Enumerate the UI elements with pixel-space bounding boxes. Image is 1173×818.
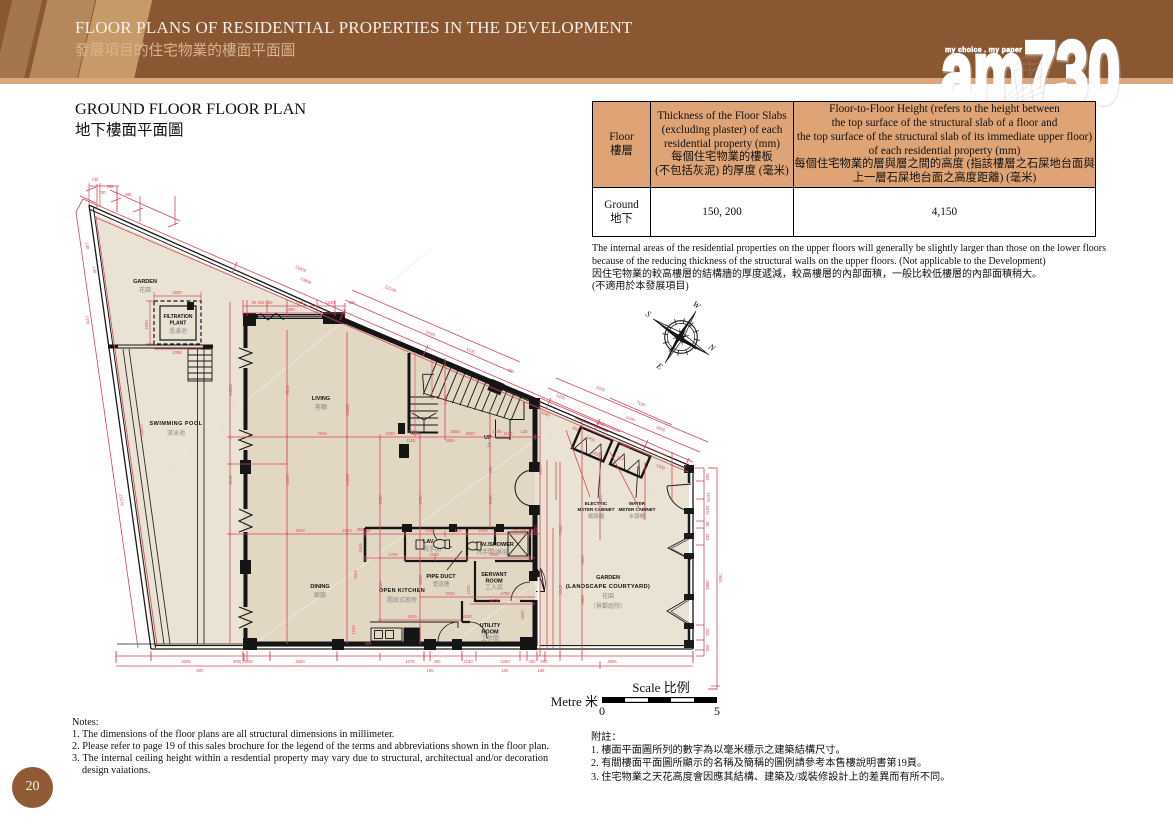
- svg-text:650: 650: [705, 645, 710, 653]
- svg-text:3650: 3650: [465, 431, 475, 436]
- svg-text:1500: 1500: [144, 320, 149, 330]
- svg-text:2340: 2340: [558, 525, 563, 535]
- svg-text:1750: 1750: [500, 591, 510, 596]
- svg-text:14085: 14085: [345, 474, 350, 486]
- svg-text:400: 400: [529, 659, 537, 664]
- svg-text:4490: 4490: [443, 395, 448, 405]
- svg-text:PIPE DUCT: PIPE DUCT: [426, 574, 456, 580]
- svg-text:DINING: DINING: [310, 584, 329, 590]
- svg-text:2280: 2280: [500, 659, 510, 664]
- svg-text:195: 195: [538, 668, 546, 673]
- svg-text:水錶櫃: 水錶櫃: [629, 512, 646, 520]
- svg-text:METER CABINET: METER CABINET: [619, 507, 656, 512]
- svg-text:1006: 1006: [172, 350, 182, 355]
- svg-text:PLANT: PLANT: [170, 321, 187, 327]
- svg-text:8210: 8210: [228, 475, 233, 485]
- svg-text:S: S: [644, 309, 654, 320]
- svg-text:FILTRATION: FILTRATION: [164, 314, 193, 320]
- svg-text:2100: 2100: [538, 465, 543, 475]
- svg-text:7196: 7196: [635, 399, 646, 408]
- svg-text:1500: 1500: [172, 290, 182, 295]
- svg-text:2150: 2150: [463, 659, 473, 664]
- svg-text:2895: 2895: [655, 424, 666, 433]
- svg-text:1090: 1090: [625, 414, 636, 423]
- svg-text:400: 400: [506, 367, 515, 375]
- svg-text:Scale 比例: Scale 比例: [632, 680, 689, 695]
- svg-text:電錶櫃: 電錶櫃: [588, 512, 605, 520]
- svg-text:2000: 2000: [478, 528, 488, 533]
- svg-text:12149: 12149: [384, 284, 397, 293]
- svg-text:1190: 1190: [492, 429, 502, 434]
- svg-text:1855: 1855: [378, 581, 383, 591]
- svg-text:客廳: 客廳: [315, 403, 327, 411]
- svg-text:1750: 1750: [388, 552, 398, 557]
- svg-text:2700: 2700: [418, 495, 423, 505]
- svg-text:UP: UP: [484, 435, 492, 441]
- svg-text:1338: 1338: [325, 300, 335, 305]
- svg-text:900: 900: [541, 659, 549, 664]
- svg-text:3650: 3650: [450, 429, 460, 434]
- svg-text:14085: 14085: [345, 404, 350, 416]
- svg-text:1535: 1535: [465, 346, 476, 355]
- svg-text:ROOM: ROOM: [485, 579, 503, 585]
- svg-text:3650: 3650: [445, 438, 455, 443]
- svg-text:500: 500: [197, 668, 205, 673]
- svg-text:1150: 1150: [406, 438, 416, 443]
- svg-text:1190: 1190: [503, 431, 513, 436]
- svg-text:1825: 1825: [598, 495, 603, 505]
- svg-text:GARDEN: GARDEN: [596, 575, 620, 581]
- svg-text:14850: 14850: [228, 384, 233, 396]
- svg-text:工作間: 工作間: [481, 635, 499, 643]
- svg-text:N: N: [706, 341, 718, 354]
- svg-text:游泳池: 游泳池: [167, 429, 185, 437]
- svg-text:1275: 1275: [405, 659, 415, 664]
- svg-text:80 400 450: 80 400 450: [252, 300, 274, 305]
- svg-text:730: 730: [92, 177, 100, 182]
- svg-text:120: 120: [521, 429, 529, 434]
- svg-text:ROOM: ROOM: [481, 630, 499, 636]
- svg-text:2030: 2030: [462, 614, 472, 619]
- svg-text:1800: 1800: [520, 610, 525, 620]
- svg-text:1175: 1175: [489, 598, 499, 603]
- svg-text:3205: 3205: [595, 384, 606, 393]
- svg-text:7940: 7940: [317, 431, 327, 436]
- svg-text:SWIMMING POOL: SWIMMING POOL: [150, 421, 203, 427]
- svg-text:5: 5: [714, 704, 720, 718]
- svg-text:花園: 花園: [602, 592, 614, 600]
- svg-text:1378: 1378: [84, 315, 90, 326]
- svg-text:開放式廚房: 開放式廚房: [387, 596, 417, 604]
- svg-text:3100: 3100: [489, 552, 499, 557]
- svg-text:花園: 花園: [139, 286, 151, 294]
- svg-text:9210: 9210: [285, 385, 290, 395]
- svg-text:OPEN KITCHEN: OPEN KITCHEN: [379, 588, 425, 594]
- svg-text:1575: 1575: [705, 505, 710, 515]
- svg-text:0: 0: [599, 704, 605, 718]
- svg-text:ELECTRIC: ELECTRIC: [585, 501, 608, 506]
- svg-text:203: 203: [705, 534, 710, 542]
- svg-text:3203: 3203: [418, 575, 423, 585]
- svg-text:1610: 1610: [351, 625, 356, 635]
- svg-text:METER CABINET: METER CABINET: [578, 507, 615, 512]
- svg-text:1963: 1963: [580, 555, 585, 565]
- svg-text:1400: 1400: [295, 300, 305, 305]
- svg-text:350: 350: [364, 528, 372, 533]
- svg-text:2185: 2185: [425, 528, 435, 533]
- svg-text:4800: 4800: [705, 580, 710, 590]
- svg-text:4805: 4805: [607, 659, 617, 664]
- svg-text:14055: 14055: [285, 474, 290, 486]
- svg-text:1603: 1603: [353, 570, 358, 580]
- svg-text:553: 553: [705, 474, 710, 482]
- svg-text:5355: 5355: [555, 392, 566, 401]
- svg-text:200: 200: [512, 528, 520, 533]
- svg-text:1250: 1250: [385, 431, 395, 436]
- svg-text:2343: 2343: [558, 585, 563, 595]
- svg-text:13178: 13178: [118, 494, 125, 507]
- svg-text:1575: 1575: [706, 492, 711, 502]
- svg-text:(LANDSCAPE COURTYARD): (LANDSCAPE COURTYARD): [566, 584, 650, 590]
- svg-text:298: 298: [125, 192, 133, 197]
- svg-text:85: 85: [705, 522, 710, 527]
- svg-text:2190: 2190: [488, 495, 493, 505]
- svg-text:1963: 1963: [580, 595, 585, 605]
- svg-text:7926: 7926: [718, 573, 723, 583]
- svg-text:400: 400: [434, 659, 442, 664]
- svg-text:1310: 1310: [466, 585, 471, 595]
- svg-text:263: 263: [705, 629, 710, 637]
- svg-text:LIVING: LIVING: [312, 396, 330, 402]
- svg-text:4000: 4000: [407, 614, 417, 619]
- svg-text:70809: 70809: [299, 276, 312, 286]
- svg-text:1345: 1345: [358, 543, 363, 553]
- svg-text:100: 100: [427, 668, 435, 673]
- svg-text:管道槽: 管道槽: [433, 580, 450, 588]
- svg-text:上: 上: [486, 441, 492, 449]
- svg-text:2700: 2700: [378, 495, 383, 505]
- svg-text:SERVANT: SERVANT: [481, 572, 507, 578]
- svg-text:140: 140: [85, 242, 91, 250]
- svg-text:4840: 4840: [295, 528, 305, 533]
- svg-text:1150: 1150: [408, 429, 418, 434]
- svg-text:400: 400: [349, 300, 357, 305]
- svg-text:GARDEN: GARDEN: [133, 279, 157, 285]
- svg-text:4500: 4500: [295, 659, 305, 664]
- svg-text:2030: 2030: [445, 591, 455, 596]
- svg-text:350: 350: [357, 527, 365, 532]
- svg-text:300: 300: [365, 641, 373, 646]
- svg-text:Metre 米: Metre 米: [551, 694, 598, 709]
- svg-text:730: 730: [99, 190, 107, 195]
- svg-text:140: 140: [92, 266, 98, 274]
- svg-text:900| |4000: 900| |4000: [233, 659, 253, 664]
- svg-text:13909: 13909: [294, 264, 307, 274]
- svg-text:600: 600: [488, 466, 493, 474]
- svg-text:2205: 2205: [429, 552, 439, 557]
- svg-text:W: W: [691, 299, 703, 312]
- svg-text:4005: 4005: [181, 659, 191, 664]
- svg-text:飯廳: 飯廳: [314, 591, 326, 599]
- svg-text:2100: 2100: [533, 525, 538, 535]
- svg-text:100: 100: [455, 528, 463, 533]
- svg-text:298: 298: [107, 184, 115, 189]
- svg-text:（景觀庭院）: （景觀庭院）: [590, 602, 626, 610]
- svg-text:E: E: [654, 360, 666, 372]
- svg-text:100: 100: [502, 668, 510, 673]
- svg-text:過濾池: 過濾池: [169, 327, 187, 335]
